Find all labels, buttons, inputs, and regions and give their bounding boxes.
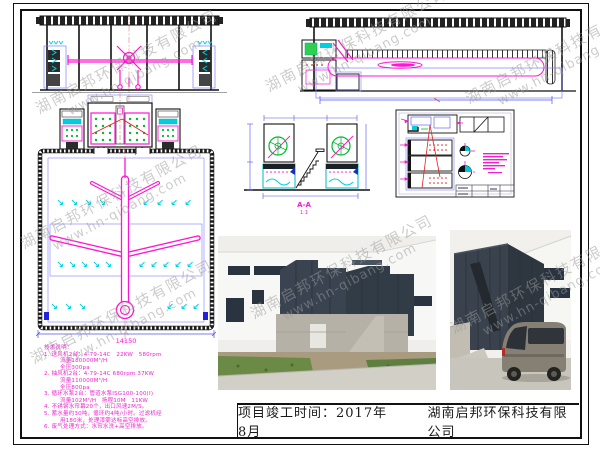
- airplane-plan-view: [52, 158, 198, 319]
- left-equipment-stack: [302, 40, 361, 91]
- spec-text-block: [483, 153, 509, 173]
- section-label: A-A: [297, 201, 311, 209]
- drawing-fan-filter-units: [58, 93, 182, 155]
- curtain-unit-left: [263, 124, 295, 188]
- drawing-side-elevation: [300, 12, 576, 104]
- note-line: 5. 蓄水量约30吨，循环约4吨/小时。过滤机经: [44, 411, 216, 418]
- note-line: 流量180000M³/H: [44, 358, 216, 365]
- curtain-unit-right: [326, 124, 358, 188]
- access-stairs: [296, 149, 324, 188]
- exhaust-unit-stack: [406, 125, 454, 190]
- drawing-section-aa: A-A 1:1: [240, 112, 374, 216]
- detail-top-right: [460, 117, 504, 132]
- water-curtain-duct: [346, 50, 555, 84]
- note-line: 流量110000M³/H: [44, 378, 216, 385]
- note-line: 技术说明：: [44, 345, 216, 352]
- drawing-sheet-page: 14150: [0, 0, 600, 450]
- plan-dimension-text: 14150: [116, 337, 137, 344]
- section-scale: 1:1: [300, 210, 308, 216]
- note-line: 6. 废气处理方式：水帘水洗+高空排放。: [44, 424, 216, 431]
- detail-top-left: [408, 115, 457, 133]
- airplane-front-view: [68, 46, 192, 89]
- technical-notes: 技术说明： 1. 送风机2台：4-79-14C 22KW 580rpm 流量18…: [44, 345, 216, 431]
- drawing-front-elevation: [32, 12, 227, 104]
- title-block: [456, 185, 514, 197]
- corner-drain: [203, 312, 208, 320]
- drawing-plan-view: 14150: [36, 148, 216, 344]
- completion-time-text: 项目竣工时间：2017年8月: [238, 402, 393, 440]
- concrete-foundation: [276, 314, 408, 356]
- note-line: 3. 循环水泵2台：管道水泵ISG100-100(I): [44, 391, 216, 398]
- note-line: 4. 不锈钢水帘幕20个，出口风速2M/S。: [44, 404, 216, 411]
- company-name-text: 湖南启邦环保科技有限公司: [427, 402, 579, 440]
- dimension-lines: [247, 115, 366, 199]
- dimension-line: [320, 96, 552, 104]
- corner-drain: [44, 312, 49, 320]
- booth-pit-outline: [316, 58, 562, 98]
- photo-equipment-closeup: [450, 230, 571, 390]
- drawing-equipment-layout-sheet: [388, 105, 522, 201]
- photo-factory-exterior-wide: [218, 236, 436, 390]
- note-line: 2. 抽风机2台：4-79-14C 680rpm 37KW: [44, 371, 216, 378]
- title-bar: 项目竣工时间：2017年8月 湖南启邦环保科技有限公司: [237, 403, 579, 437]
